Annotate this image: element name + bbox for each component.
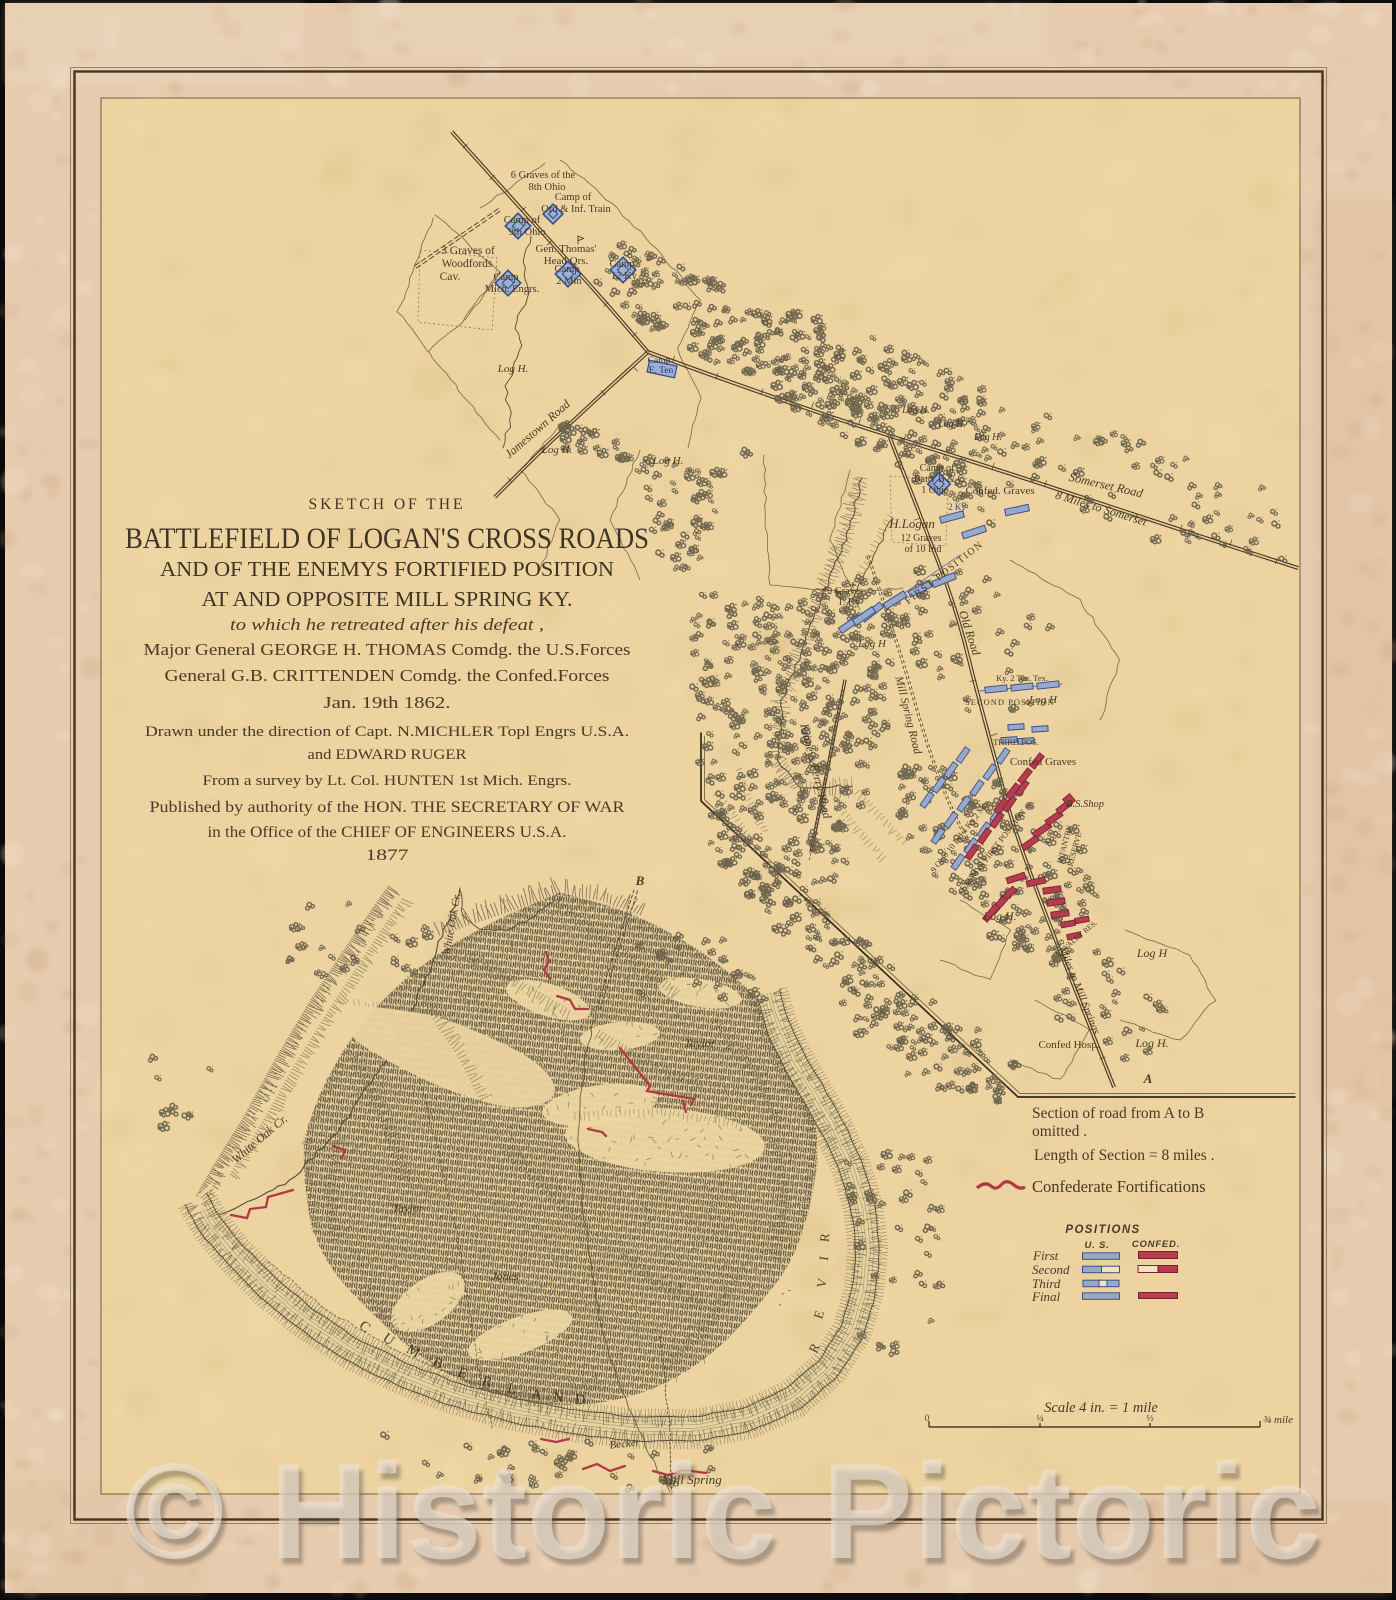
svg-text:3 Graves of: 3 Graves of <box>441 245 495 257</box>
svg-text:AT AND OPPOSITE MILL SPRING KY: AT AND OPPOSITE MILL SPRING KY. <box>202 587 573 611</box>
svg-text:E. Ten: E. Ten <box>649 366 674 376</box>
svg-text:Ord & Inf. Train: Ord & Inf. Train <box>541 204 611 215</box>
svg-text:Drawn under the direction of C: Drawn under the direction of Capt. N.MIC… <box>145 724 629 740</box>
svg-text:Log H.: Log H. <box>973 432 1002 443</box>
svg-text:H.Logan: H.Logan <box>888 516 935 531</box>
svg-text:THIRD POS.: THIRD POS. <box>993 737 1039 747</box>
svg-text:Camp of: Camp of <box>555 192 592 203</box>
svg-text:CONFED.: CONFED. <box>1132 1239 1180 1250</box>
svg-text:9th Ohio: 9th Ohio <box>508 227 545 238</box>
svg-text:Taylor: Taylor <box>685 1036 716 1050</box>
svg-text:Taylor: Taylor <box>393 1201 424 1215</box>
svg-text:Confederate Fortifications: Confederate Fortifications <box>1032 1177 1206 1196</box>
svg-text:in the Office of the CHIEF OF: in the Office of the CHIEF OF ENGINEERS … <box>208 824 567 841</box>
svg-text:From a survey by Lt. Col. HUNT: From a survey by Lt. Col. HUNTEN 1st Mic… <box>203 773 572 789</box>
svg-text:Camp: Camp <box>609 259 634 270</box>
svg-text:BATTLEFIELD OF LOGAN'S CROSS R: BATTLEFIELD OF LOGAN'S CROSS ROADS <box>125 522 649 555</box>
svg-text:Log H: Log H <box>1136 946 1169 960</box>
svg-text:Mich. Engrs.: Mich. Engrs. <box>485 284 540 295</box>
svg-text:Woodfords: Woodfords <box>442 258 493 270</box>
svg-text:SECOND POSITION: SECOND POSITION <box>965 697 1055 707</box>
svg-text:12 Graves: 12 Graves <box>901 533 942 544</box>
svg-text:Length of Section = 8 miles .: Length of Section = 8 miles . <box>1034 1147 1215 1164</box>
svg-text:Confed Graves: Confed Graves <box>1010 756 1076 768</box>
svg-text:B: B <box>635 873 645 888</box>
svg-text:Cav.: Cav. <box>440 271 461 283</box>
svg-text:Second: Second <box>1032 1262 1070 1277</box>
svg-text:Major General GEORGE H. THOMAS: Major General GEORGE H. THOMAS Comdg. th… <box>144 640 631 659</box>
svg-text:of 10 Ind: of 10 Ind <box>905 544 942 555</box>
svg-text:D: D <box>575 1392 586 1409</box>
svg-text:SKETCH OF THE: SKETCH OF THE <box>309 496 466 513</box>
svg-text:AND OF THE ENEMYS FORTIFIED PO: AND OF THE ENEMYS FORTIFIED POSITION <box>160 557 614 581</box>
svg-text:Log H: Log H <box>857 638 887 650</box>
svg-text:B.S.Shop: B.S.Shop <box>1066 799 1104 810</box>
svg-text:General G.B. CRITTENDEN Comdg.: General G.B. CRITTENDEN Comdg. the Confe… <box>165 666 610 685</box>
svg-text:12 Ky: 12 Ky <box>611 271 638 282</box>
svg-text:Camp of: Camp of <box>920 463 955 474</box>
svg-text:Log H.: Log H. <box>1134 1036 1168 1050</box>
svg-text:¾ mile: ¾ mile <box>1263 1414 1293 1426</box>
svg-text:to which he retreated after hi: to which he retreated after his defeat , <box>230 615 544 634</box>
svg-text:Log H.: Log H. <box>541 444 573 456</box>
svg-text:POSITIONS: POSITIONS <box>1065 1224 1140 1236</box>
svg-text:Jan. 19th 1862.: Jan. 19th 1862. <box>324 693 451 712</box>
svg-text:Confed. Graves: Confed. Graves <box>965 485 1034 497</box>
svg-text:Gen. Thomas': Gen. Thomas' <box>535 243 596 255</box>
svg-text:Scale 4 in. = 1 mile: Scale 4 in. = 1 mile <box>1044 1400 1158 1416</box>
svg-text:Camp: Camp <box>648 356 671 366</box>
svg-text:Jones: Jones <box>491 1269 519 1283</box>
svg-text:Batty B & C: Batty B & C <box>914 474 965 485</box>
svg-text:Camp: Camp <box>493 272 518 283</box>
svg-text:2 Min: 2 Min <box>556 276 582 287</box>
svg-text:Ky. 2 Ten. Tex.: Ky. 2 Ten. Tex. <box>996 673 1048 683</box>
svg-text:Log H.: Log H. <box>982 909 1016 923</box>
svg-text:Camp: Camp <box>554 264 579 275</box>
svg-text:Log H.: Log H. <box>497 363 529 375</box>
svg-text:0: 0 <box>925 1413 930 1423</box>
svg-text:2 Ky: 2 Ky <box>948 502 966 512</box>
svg-text:Log H.: Log H. <box>652 455 684 467</box>
svg-text:½: ½ <box>1146 1413 1153 1424</box>
svg-text:Final: Final <box>1031 1289 1061 1304</box>
svg-text:omitted .: omitted . <box>1032 1123 1087 1140</box>
svg-text:Section of road from A to B: Section of road from A to B <box>1032 1105 1204 1122</box>
svg-text:© Historic Pictoric: © Historic Pictoric <box>124 1435 1321 1587</box>
svg-text:and EDWARD RUGER: and EDWARD RUGER <box>308 747 467 763</box>
svg-text:Published by authority of the: Published by authority of the HON. THE S… <box>150 799 626 816</box>
svg-text:9 Graves: 9 Graves <box>827 586 863 597</box>
svg-text:¼: ¼ <box>1036 1414 1043 1424</box>
svg-text:Log H.: Log H. <box>901 405 930 416</box>
svg-text:First: First <box>1032 1248 1059 1263</box>
svg-text:Camp of: Camp of <box>504 215 541 226</box>
svg-text:A: A <box>1143 1071 1153 1086</box>
svg-text:N: N <box>552 1390 564 1407</box>
svg-text:1. Ky: 1. Ky <box>838 597 860 608</box>
svg-text:Log H.: Log H. <box>937 419 966 430</box>
svg-text:Confed Hosp.: Confed Hosp. <box>1038 1039 1099 1051</box>
svg-text:1 Ohio: 1 Ohio <box>921 485 949 496</box>
svg-text:U. S.: U. S. <box>1084 1240 1109 1251</box>
svg-text:6 Graves of the: 6 Graves of the <box>511 170 576 181</box>
svg-text:1877: 1877 <box>366 847 409 864</box>
